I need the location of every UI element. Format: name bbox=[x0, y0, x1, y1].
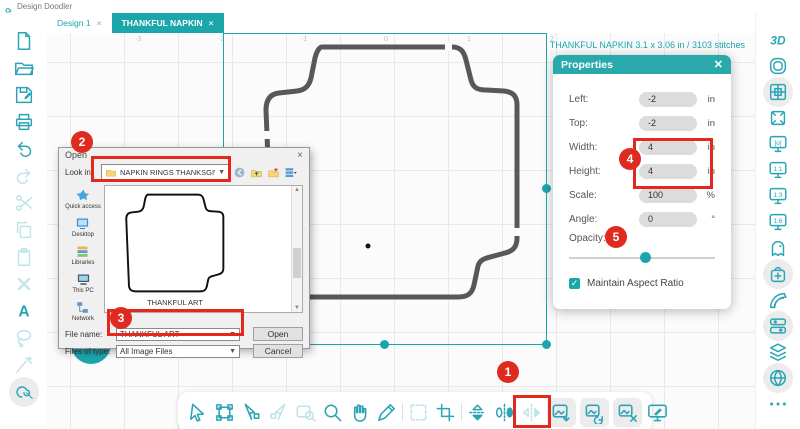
property-row: Top:-2in bbox=[553, 111, 731, 135]
desktop-icon bbox=[74, 216, 91, 231]
undo-icon[interactable] bbox=[13, 138, 35, 160]
tab-design-1[interactable]: Design 1× bbox=[47, 13, 112, 33]
property-label: Angle: bbox=[569, 214, 639, 225]
property-row: Left:-2in bbox=[553, 87, 731, 111]
scrollbar-thumb[interactable] bbox=[293, 248, 301, 278]
chevron-down-icon: ▼ bbox=[229, 331, 236, 338]
flip-stack-icon[interactable] bbox=[466, 401, 489, 424]
property-unit: in bbox=[697, 118, 715, 129]
width-input[interactable]: 4 bbox=[639, 140, 697, 155]
mascot-icon[interactable] bbox=[767, 237, 789, 259]
properties-panel: Properties ✕ Left:-2inTop:-2inWidth:4inH… bbox=[553, 55, 731, 309]
stitch-globe-icon[interactable] bbox=[767, 367, 789, 389]
hoop-icon[interactable] bbox=[767, 55, 789, 77]
file-name-value: THANKFUL ART bbox=[120, 330, 180, 339]
property-label: Left: bbox=[569, 94, 639, 105]
svg-text:1:1: 1:1 bbox=[774, 166, 783, 173]
place-quick-access[interactable]: Quick access bbox=[65, 188, 101, 210]
ruler-tick: -3 bbox=[135, 36, 141, 43]
opacity-slider-knob[interactable] bbox=[640, 252, 651, 263]
app-window: Design Doodler Design 1×THANKFUL NAPKIN×… bbox=[0, 0, 800, 429]
annotation-badge-2: 2 bbox=[71, 131, 93, 153]
remove-image-icon[interactable] bbox=[613, 398, 642, 427]
node-convert-icon bbox=[267, 401, 290, 424]
file-type-value: All Image Files bbox=[120, 347, 172, 356]
look-in-label: Look in: bbox=[65, 168, 97, 177]
magic-tool-icon bbox=[13, 354, 35, 376]
dialog-nav-buttons bbox=[233, 166, 297, 179]
file-thumbnail[interactable] bbox=[113, 190, 237, 296]
open-dialog: Open × Look in: NAPKIN RINGS THANKSGIVIN… bbox=[58, 147, 310, 349]
file-name-row: File name: THANKFUL ART ▼ Open bbox=[65, 327, 303, 341]
zoom-select-icon bbox=[294, 401, 317, 424]
maintain-aspect-row: ✓ Maintain Aspect Ratio bbox=[553, 264, 731, 289]
cut-icon bbox=[13, 192, 35, 214]
angle-input[interactable]: 0 bbox=[639, 212, 697, 227]
selection-handle-bottom[interactable] bbox=[380, 340, 389, 349]
place-label: Libraries bbox=[71, 260, 94, 266]
fit-to-screen-icon[interactable] bbox=[767, 107, 789, 129]
open-dialog-body: Quick accessDesktopLibrariesThis PCNetwo… bbox=[59, 183, 309, 322]
property-label: Top: bbox=[569, 118, 639, 129]
property-unit: in bbox=[697, 94, 715, 105]
selection-handle-right[interactable] bbox=[542, 184, 551, 193]
file-name-label: File name: bbox=[65, 330, 112, 339]
app-logo-icon bbox=[4, 2, 13, 11]
title-bar: Design Doodler bbox=[0, 0, 800, 13]
property-unit: % bbox=[697, 190, 715, 201]
annotation-badge-3: 3 bbox=[110, 307, 132, 329]
property-row: Scale:100% bbox=[553, 183, 731, 207]
file-list[interactable]: THANKFUL ART ▲ ▼ bbox=[104, 185, 303, 313]
lasso-tool-icon bbox=[13, 327, 35, 349]
open-dialog-titlebar[interactable]: Open × bbox=[59, 148, 309, 162]
save-icon[interactable] bbox=[13, 84, 35, 106]
property-row: Height:4in bbox=[553, 159, 731, 183]
import-image-icon[interactable] bbox=[547, 398, 576, 427]
doodle-tool-icon[interactable] bbox=[13, 381, 35, 403]
place-network[interactable]: Network bbox=[72, 300, 94, 322]
tab-bar: Design 1×THANKFUL NAPKIN× bbox=[47, 13, 755, 33]
zoom-1-6-icon[interactable]: 1:6 bbox=[767, 211, 789, 233]
stitch-settings-icon[interactable] bbox=[767, 315, 789, 337]
tab-label: THANKFUL NAPKIN bbox=[122, 18, 203, 28]
file-type-dropdown[interactable]: All Image Files ▼ bbox=[116, 345, 240, 358]
network-icon bbox=[74, 300, 91, 315]
top-input[interactable]: -2 bbox=[639, 116, 697, 131]
file-name-input[interactable]: THANKFUL ART ▼ bbox=[116, 328, 240, 341]
zoom-preview-icon[interactable]: [o] bbox=[767, 133, 789, 155]
view-3d-icon[interactable]: 3D bbox=[767, 29, 789, 51]
tab-close-icon[interactable]: × bbox=[97, 18, 102, 28]
annotation-badge-5: 5 bbox=[605, 226, 627, 248]
folder-icon bbox=[105, 167, 117, 178]
layers-icon[interactable] bbox=[767, 341, 789, 363]
print-icon[interactable] bbox=[13, 111, 35, 133]
new-folder-icon[interactable] bbox=[267, 166, 280, 179]
svg-text:1:3: 1:3 bbox=[774, 192, 783, 199]
place-label: Network bbox=[72, 316, 94, 322]
app-title: Design Doodler bbox=[17, 2, 72, 11]
copy-icon bbox=[13, 219, 35, 241]
up-one-level-icon[interactable] bbox=[250, 166, 263, 179]
zoom-1-3-icon[interactable]: 1:3 bbox=[767, 185, 789, 207]
open-button[interactable]: Open bbox=[253, 327, 303, 341]
marquee-select-icon bbox=[407, 401, 430, 424]
file-type-label: Files of type: bbox=[65, 347, 112, 356]
chevron-down-icon: ▼ bbox=[229, 348, 236, 355]
select-cursor-icon[interactable] bbox=[186, 401, 209, 424]
design-stats: THANKFUL NAPKIN 3.1 x 3.06 in / 3103 sti… bbox=[495, 40, 745, 50]
property-row: Angle:0° bbox=[553, 207, 731, 231]
svg-text:1:6: 1:6 bbox=[774, 218, 783, 225]
libraries-icon bbox=[74, 244, 91, 259]
place-label: Desktop bbox=[72, 232, 94, 238]
pan-hand-icon[interactable] bbox=[348, 401, 371, 424]
delete-icon bbox=[13, 273, 35, 295]
property-row: Width:4in bbox=[553, 135, 731, 159]
look-in-dropdown[interactable]: NAPKIN RINGS THANKSGIVING ▼ bbox=[101, 164, 229, 180]
thispc-icon bbox=[75, 272, 92, 287]
redo-icon bbox=[13, 165, 35, 187]
bottom-toolbar bbox=[178, 392, 652, 429]
scroll-down-icon[interactable]: ▼ bbox=[292, 305, 302, 311]
close-icon[interactable]: × bbox=[297, 150, 303, 161]
scale-input[interactable]: 100 bbox=[639, 188, 697, 203]
toolbar-separator bbox=[461, 403, 462, 421]
close-icon[interactable]: ✕ bbox=[714, 58, 723, 71]
tab-label: Design 1 bbox=[57, 18, 91, 28]
new-design-icon[interactable] bbox=[13, 30, 35, 52]
properties-title: Properties bbox=[561, 59, 613, 71]
height-input[interactable]: 4 bbox=[639, 164, 697, 179]
property-label: Scale: bbox=[569, 190, 639, 201]
paste-icon bbox=[13, 246, 35, 268]
property-unit: ° bbox=[697, 214, 715, 225]
measure-pen-icon[interactable] bbox=[375, 401, 398, 424]
chevron-down-icon: ▼ bbox=[218, 169, 225, 176]
more-options-icon[interactable] bbox=[767, 393, 789, 415]
cancel-button[interactable]: Cancel bbox=[253, 344, 303, 358]
tab-close-icon[interactable]: × bbox=[209, 18, 214, 28]
places-sidebar: Quick accessDesktopLibrariesThis PCNetwo… bbox=[65, 185, 101, 322]
annotation-badge-4: 4 bbox=[619, 148, 641, 170]
property-unit: in bbox=[697, 142, 715, 153]
place-desktop[interactable]: Desktop bbox=[72, 216, 94, 238]
svg-text:[o]: [o] bbox=[774, 140, 781, 147]
svg-text:3D: 3D bbox=[770, 34, 786, 48]
trace-image-icon[interactable] bbox=[646, 401, 669, 424]
place-label: This PC bbox=[72, 288, 93, 294]
selection-handle-bottom-right[interactable] bbox=[542, 340, 551, 349]
file-type-row: Files of type: All Image Files ▼ Cancel bbox=[65, 344, 303, 358]
right-toolbar: 3D[o]1:11:31:6 bbox=[755, 13, 800, 429]
left-toolbar: A bbox=[0, 13, 47, 429]
crop-icon[interactable] bbox=[434, 401, 457, 424]
maintain-aspect-checkbox[interactable]: ✓ bbox=[569, 278, 580, 289]
open-file-icon[interactable] bbox=[13, 57, 35, 79]
flip-vertical-icon[interactable] bbox=[493, 401, 516, 424]
tab-thankful-napkin[interactable]: THANKFUL NAPKIN× bbox=[112, 13, 224, 33]
properties-fields: Left:-2inTop:-2inWidth:4inHeight:4inScal… bbox=[553, 74, 731, 231]
annotation-badge-1: 1 bbox=[497, 361, 519, 383]
node-edit-icon[interactable] bbox=[240, 401, 263, 424]
open-dialog-toolbar: Look in: NAPKIN RINGS THANKSGIVING ▼ bbox=[59, 162, 309, 183]
star-icon bbox=[75, 188, 92, 203]
opacity-slider[interactable] bbox=[569, 252, 715, 264]
thread-colors-icon[interactable] bbox=[767, 289, 789, 311]
view-menu-icon[interactable] bbox=[284, 166, 297, 179]
place-label: Quick access bbox=[65, 204, 101, 210]
look-in-value: NAPKIN RINGS THANKSGIVING bbox=[120, 168, 215, 177]
place-libraries[interactable]: Libraries bbox=[71, 244, 94, 266]
store-icon[interactable] bbox=[767, 263, 789, 285]
left-input[interactable]: -2 bbox=[639, 92, 697, 107]
grid-toggle-icon[interactable] bbox=[767, 81, 789, 103]
property-unit: in bbox=[697, 166, 715, 177]
replace-image-icon[interactable] bbox=[580, 398, 609, 427]
toolbar-separator bbox=[402, 403, 403, 421]
zoom-icon[interactable] bbox=[321, 401, 344, 424]
file-list-scrollbar[interactable]: ▲ ▼ bbox=[291, 186, 302, 312]
back-icon[interactable] bbox=[233, 166, 246, 179]
properties-header: Properties ✕ bbox=[553, 55, 731, 74]
transform-icon[interactable] bbox=[213, 401, 236, 424]
scroll-up-icon[interactable]: ▲ bbox=[292, 187, 302, 193]
file-thumbnail-caption: THANKFUL ART bbox=[105, 298, 245, 307]
text-tool-icon[interactable]: A bbox=[13, 300, 35, 322]
opacity-label: Opacity: bbox=[553, 231, 731, 244]
svg-text:A: A bbox=[18, 304, 29, 321]
flip-horizontal-icon bbox=[520, 401, 543, 424]
maintain-aspect-label: Maintain Aspect Ratio bbox=[587, 278, 684, 289]
zoom-1-1-icon[interactable]: 1:1 bbox=[767, 159, 789, 181]
place-this-pc[interactable]: This PC bbox=[72, 272, 93, 294]
